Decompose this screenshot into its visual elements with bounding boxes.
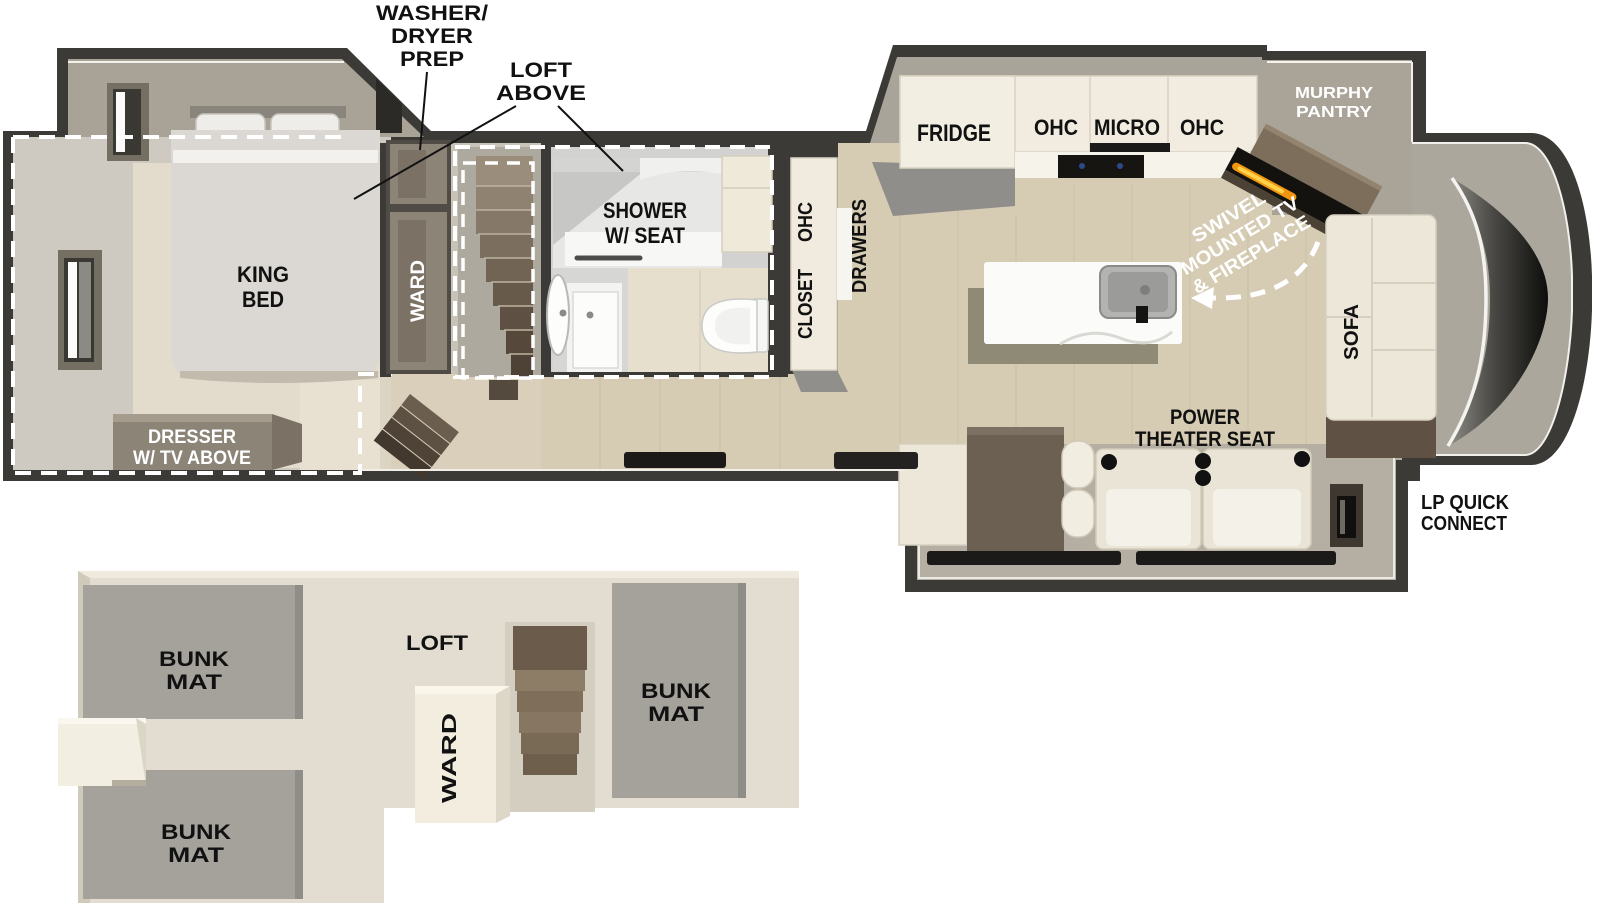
svg-text:KING: KING xyxy=(237,262,289,287)
svg-text:LOFT: LOFT xyxy=(406,632,468,655)
svg-text:SHOWER: SHOWER xyxy=(603,198,687,223)
svg-text:ABOVE: ABOVE xyxy=(496,82,586,105)
svg-text:PANTRY: PANTRY xyxy=(1296,104,1372,121)
svg-text:WASHER/: WASHER/ xyxy=(376,2,488,25)
svg-text:SOFA: SOFA xyxy=(1341,304,1363,360)
svg-text:BUNK: BUNK xyxy=(161,821,231,844)
svg-text:BED: BED xyxy=(242,287,284,312)
svg-text:OHC: OHC xyxy=(1034,115,1078,140)
svg-text:DRAWERS: DRAWERS xyxy=(849,199,871,293)
svg-text:MURPHY: MURPHY xyxy=(1295,85,1373,102)
svg-text:MAT: MAT xyxy=(166,671,222,694)
svg-text:LP QUICK: LP QUICK xyxy=(1421,492,1510,514)
svg-text:OHC: OHC xyxy=(1180,115,1224,140)
svg-text:MAT: MAT xyxy=(168,844,224,867)
svg-text:W/ TV ABOVE: W/ TV ABOVE xyxy=(133,448,251,469)
svg-text:LOFT: LOFT xyxy=(510,59,572,82)
svg-text:BUNK: BUNK xyxy=(641,680,711,703)
svg-text:MICRO: MICRO xyxy=(1094,115,1160,140)
svg-text:CONNECT: CONNECT xyxy=(1421,513,1507,535)
svg-text:POWER: POWER xyxy=(1170,406,1240,429)
svg-text:CLOSET: CLOSET xyxy=(795,269,817,339)
svg-text:OHC: OHC xyxy=(795,202,817,242)
svg-text:MAT: MAT xyxy=(648,703,704,726)
svg-text:THEATER SEAT: THEATER SEAT xyxy=(1135,428,1275,451)
svg-text:FRIDGE: FRIDGE xyxy=(917,120,991,147)
svg-text:DRYER: DRYER xyxy=(391,25,473,48)
svg-text:PREP: PREP xyxy=(400,48,464,71)
svg-text:WARD: WARD xyxy=(439,713,461,803)
svg-text:W/ SEAT: W/ SEAT xyxy=(605,223,685,248)
svg-text:WARD: WARD xyxy=(408,260,429,322)
svg-text:BUNK: BUNK xyxy=(159,648,229,671)
svg-text:DRESSER: DRESSER xyxy=(148,427,236,448)
